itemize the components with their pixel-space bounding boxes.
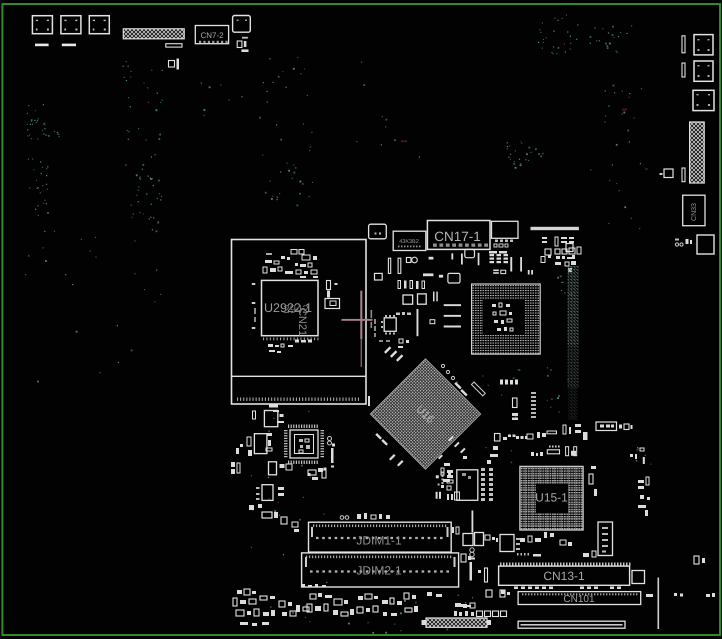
svg-text:CN33: CN33: [691, 203, 698, 221]
svg-text:CN101: CN101: [563, 594, 595, 605]
svg-text:U15-1: U15-1: [535, 491, 568, 505]
svg-text:JDIM1-1: JDIM1-1: [356, 534, 402, 548]
svg-text:CN7-2: CN7-2: [200, 31, 224, 40]
svg-text:CN13-1: CN13-1: [543, 569, 585, 583]
svg-text:CN17-1: CN17-1: [434, 229, 481, 244]
svg-text:JDIM2-1: JDIM2-1: [356, 564, 402, 578]
svg-text:CN21: CN21: [296, 308, 308, 336]
svg-text:43K3B2: 43K3B2: [399, 239, 419, 245]
